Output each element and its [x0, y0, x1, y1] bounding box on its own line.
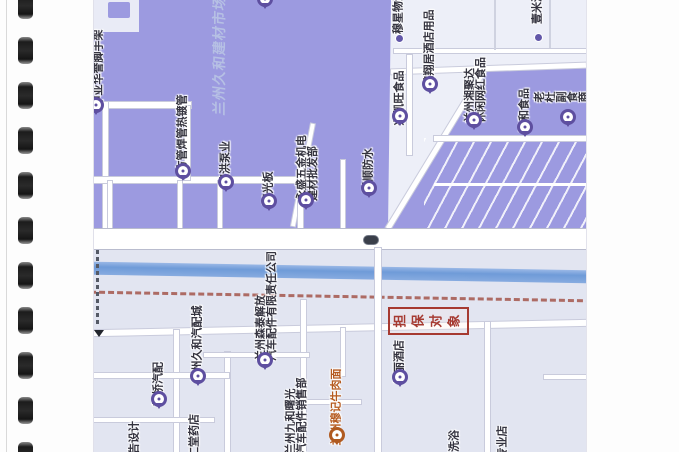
road [375, 248, 381, 452]
road [178, 181, 182, 232]
corner-building [108, 2, 130, 18]
binding-hole [18, 82, 33, 109]
road [485, 322, 490, 452]
road [407, 55, 412, 155]
poi-xingkaiwang-food-pin [392, 108, 408, 124]
poi-laodu-fushi-pin [560, 109, 576, 125]
road [341, 160, 345, 232]
main-road [94, 228, 586, 250]
road [108, 181, 112, 232]
poi-fangguan-hanguan-pin [175, 163, 191, 179]
direction-arrow-icon [94, 330, 104, 337]
poi-niuroumian-pin [329, 427, 345, 443]
road [434, 183, 586, 186]
road [174, 330, 179, 452]
map-canvas: 兰州久和建材市场 担保对象 中亚华誉脚手架方管焊管热镀管锦洪泵业阳光板永盛五金机… [93, 0, 587, 452]
road [549, 0, 551, 48]
poi-muxing-wuliu-dot [395, 34, 404, 43]
poi-hongxiangju-hotel-pin [422, 76, 438, 92]
poi-sentai-jiefang-pin [257, 352, 273, 368]
poi-xinqiao-qipei-pin [151, 391, 167, 407]
poi-zhuanyedian-label: 专业店 [497, 426, 508, 452]
market-area-watermark: 兰州久和建材市场 [209, 0, 229, 116]
poi-jiuhe-shuguang-label: 兰州九和曙光 汽车配件销售部 [285, 378, 307, 452]
road [494, 0, 496, 50]
binding-hole [18, 397, 33, 424]
road [434, 136, 586, 141]
poi-jiuhe-qipeicheng-pin [190, 368, 206, 384]
poi-xiyu-label: 洗浴 [449, 430, 460, 452]
poi-meili-hotel-pin [392, 369, 408, 385]
highlight-char: 象 [448, 313, 464, 330]
binding-hole [18, 262, 33, 289]
poi-tianhe-food-pin [517, 119, 533, 135]
binding-hole [18, 442, 33, 452]
poi-yongsheng-wujin-pin [298, 192, 314, 208]
binding-hole [18, 217, 33, 244]
binding-hole [18, 307, 33, 334]
binding-hole [18, 37, 33, 64]
poi-zhongya-huayu-label: 中亚华誉脚手架 [93, 30, 104, 107]
poi-lanzhou-xiangjuda-pin [466, 112, 482, 128]
poi-guanggao-sheji-label: 广告设计 [129, 421, 140, 452]
road [544, 375, 586, 379]
poi-sentai-jiefang-label: 兰州森泰解放 汽车配件有限责任公司 [255, 251, 277, 361]
binding-hole [18, 352, 33, 379]
highlight-char: 对 [430, 313, 446, 330]
poi-muxing-wuliu-label: 穆星物流 [393, 0, 404, 34]
binding-hole [18, 0, 33, 19]
poi-yimidida-dot [534, 33, 543, 42]
poi-hongxiangju-hotel-label: 鸿翔居酒店用品 [424, 10, 435, 87]
poi-laodu-fushi-label: 老杜副食商行 [534, 84, 587, 103]
highlighted-destination-box: 担保对象 [388, 307, 469, 335]
poi-tang-yaodian-label: 仁堂药店 [189, 414, 200, 452]
river [93, 262, 587, 284]
edge-road-label [96, 250, 99, 326]
road [225, 352, 230, 452]
road-number-badge [364, 236, 378, 244]
binding-hole [18, 127, 33, 154]
poi-fangguan-hanguan-label: 方管焊管热镀管 [177, 95, 188, 172]
poi-yimidida-label: 壹米滴答 [532, 0, 543, 24]
paper-edge [6, 0, 7, 452]
binding-hole [18, 172, 33, 199]
road [94, 177, 314, 183]
scanned-page: 兰州久和建材市场 担保对象 中亚华誉脚手架方管焊管热镀管锦洪泵业阳光板永盛五金机… [0, 0, 679, 452]
highlight-char: 担 [394, 313, 410, 330]
poi-yangguangban-pin [261, 193, 277, 209]
poi-keshun-fangshui-pin [361, 180, 377, 196]
poi-jinhong-pump-pin [218, 174, 234, 190]
highlight-char: 保 [412, 313, 428, 330]
district-boundary-dashed [93, 291, 587, 303]
road [93, 320, 587, 337]
